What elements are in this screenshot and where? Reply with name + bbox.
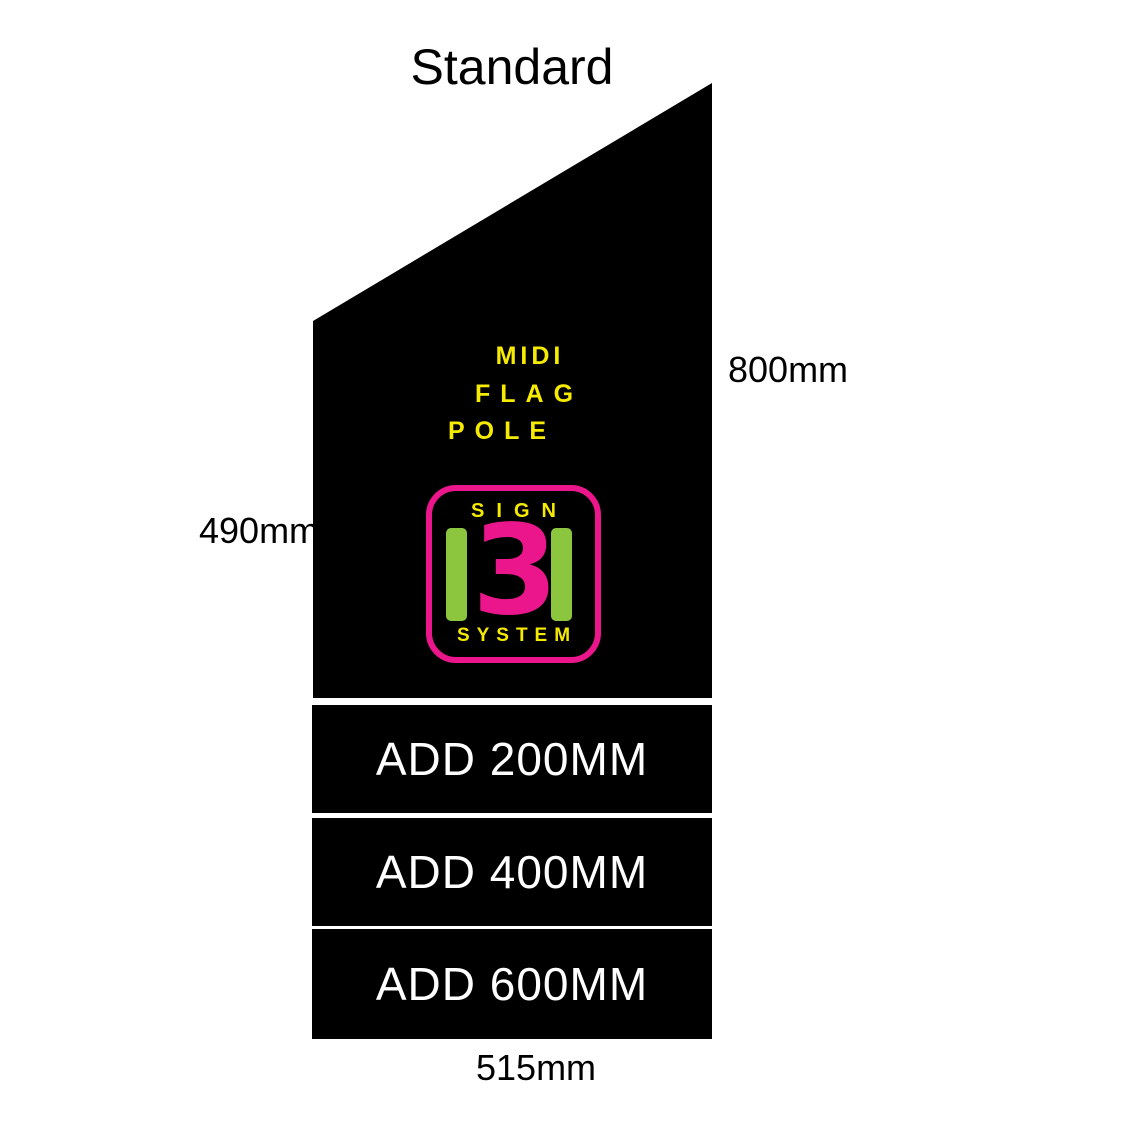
flag-text-line-2: FLAG <box>475 382 583 407</box>
extension-bar-add-400mm: ADD 400MM <box>312 818 712 926</box>
logo-numeral-one-right-bar <box>551 528 572 621</box>
logo-numeral-three: 3 <box>472 524 548 619</box>
flag-text-line-3: POLE <box>448 419 556 444</box>
sign-131-system-logo: SIGN 3 SYSTEM <box>426 485 601 663</box>
extension-label: ADD 400MM <box>376 845 648 899</box>
dimension-label-width-490mm: 490mm <box>199 513 319 549</box>
extension-bar-add-600mm: ADD 600MM <box>312 929 712 1039</box>
cestrian-signs-badge-graphic: Cestrian Signs One Stop Sign Service <box>875 728 953 772</box>
extension-bar-add-200mm: ADD 200MM <box>312 705 712 813</box>
flag-text-line-1: MIDI <box>496 344 565 369</box>
logo-numeral-one-left-bar <box>446 528 467 621</box>
page-title: Standard <box>0 38 1024 96</box>
midi-flag-panel: MIDI FLAG POLE SIGN 3 SYSTEM Cestrian <box>313 83 712 698</box>
badge-tagline: One Stop Sign Service <box>880 761 949 768</box>
badge-oval <box>883 730 943 759</box>
extension-label: ADD 200MM <box>376 732 648 786</box>
flag-pole-diagram: Standard MIDI FLAG POLE SIGN 3 SYSTEM <box>0 0 1134 1134</box>
badge-name-line2: Signs <box>901 745 925 756</box>
dimension-label-base-515mm: 515mm <box>476 1050 596 1086</box>
dimension-label-height-800mm: 800mm <box>728 352 848 388</box>
logo-word-system: SYSTEM <box>432 626 595 645</box>
badge-name-line1: Cestrian <box>895 734 932 745</box>
extension-label: ADD 600MM <box>376 957 648 1011</box>
badge-outline <box>882 729 945 760</box>
cestrian-signs-badge: Cestrian Signs One Stop Sign Service <box>875 728 953 772</box>
